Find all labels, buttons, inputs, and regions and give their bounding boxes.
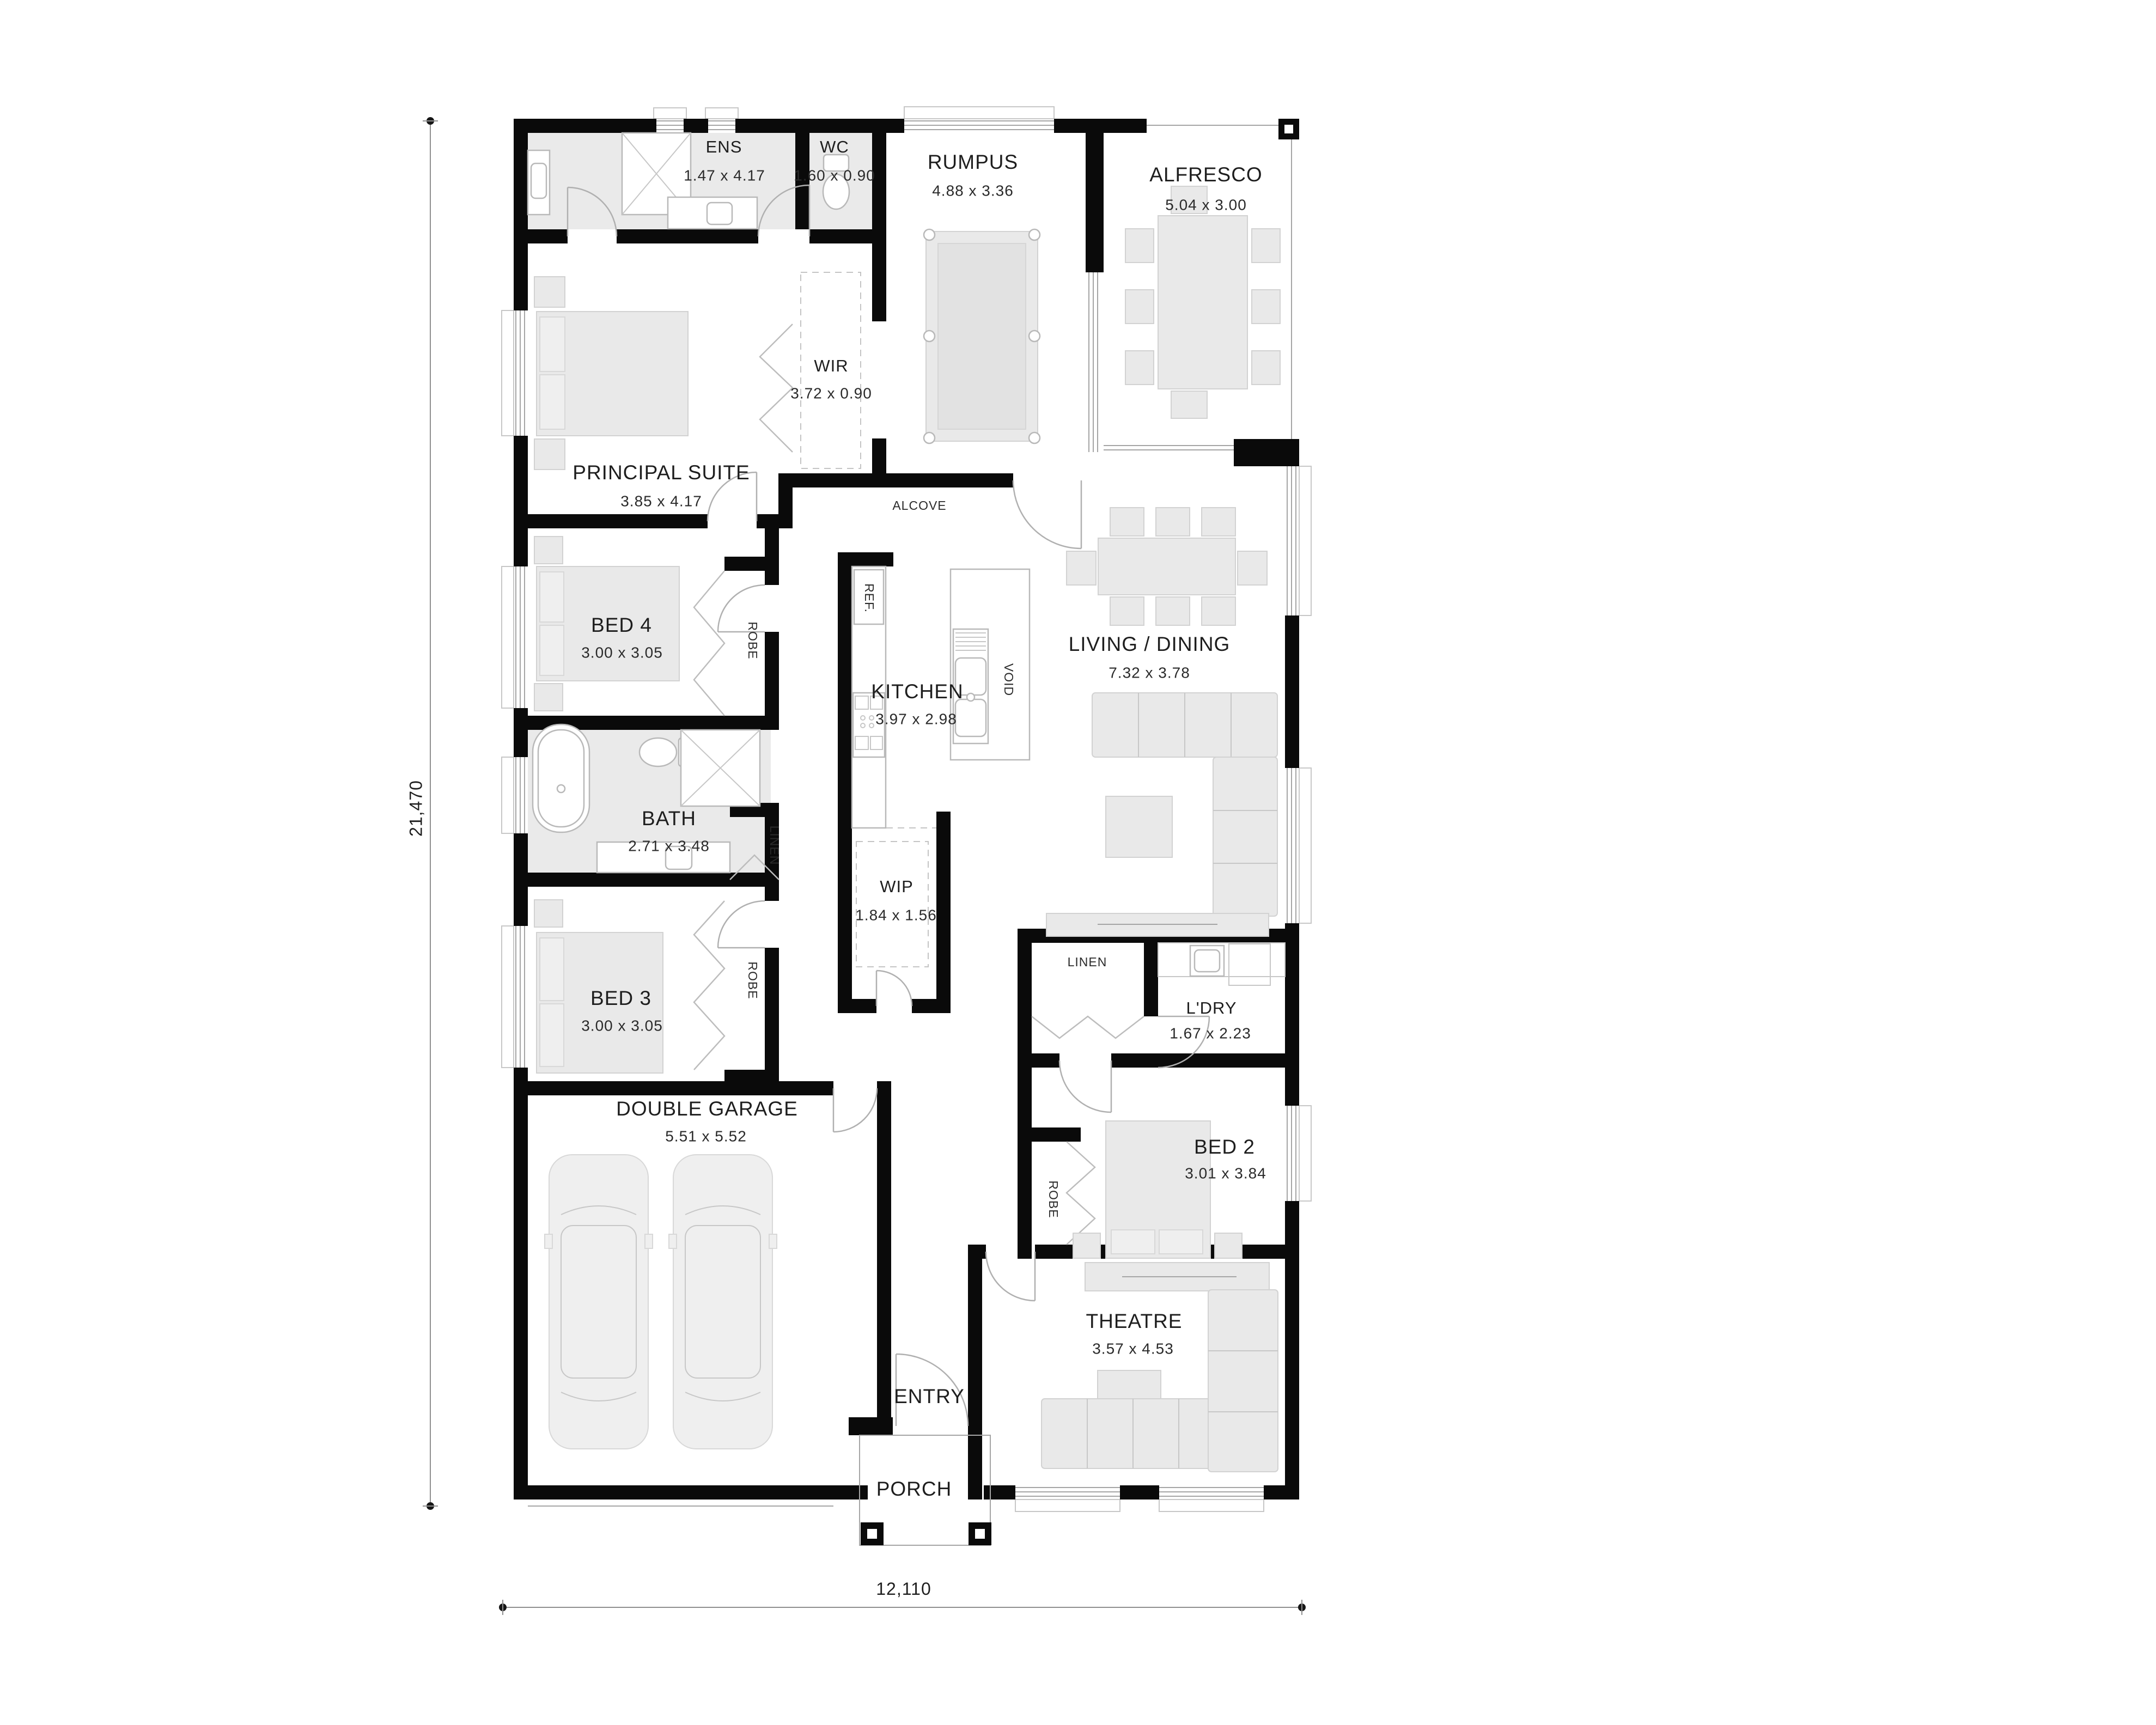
laundry-fixtures (1158, 943, 1285, 985)
principal-suite-furniture (534, 277, 688, 470)
garage-cars (545, 1155, 777, 1449)
room-dims-bath: 2.71 x 3.48 (628, 837, 710, 854)
room-label-garage: DOUBLE GARAGE (616, 1098, 798, 1120)
room-dims-wc: 1.60 x 0.90 (794, 167, 875, 184)
room-label-bath: BATH (642, 807, 696, 830)
room-dims-living-dining: 7.32 x 3.78 (1109, 664, 1190, 681)
room-label-wip: WIP (880, 877, 913, 896)
room-label-rumpus: RUMPUS (928, 151, 1018, 173)
wip-door (876, 971, 912, 1006)
linen-hall-bifold (1032, 1016, 1144, 1038)
theatre-furniture (1042, 1263, 1278, 1472)
room-label-living-dining: LIVING / DINING (1069, 633, 1231, 655)
room-label-entry: ENTRY (894, 1385, 965, 1407)
alfresco-dining-set (1125, 186, 1280, 418)
room-dims-rumpus: 4.88 x 3.36 (932, 182, 1014, 199)
porch-post (969, 1522, 991, 1545)
alfresco-stacker-door (1089, 272, 1098, 452)
room-dims-wir: 3.72 x 0.90 (790, 385, 872, 401)
room-dims-wip: 1.84 x 1.56 (855, 906, 937, 923)
bed2-door (1059, 1060, 1111, 1112)
room-label-kitchen: KITCHEN (871, 680, 963, 703)
room-dims-garage: 5.51 x 5.52 (665, 1127, 747, 1144)
bed4-robe-bifold (694, 571, 724, 716)
alfresco-south-edge (1104, 446, 1234, 450)
theatre-door (986, 1252, 1035, 1301)
car (545, 1155, 653, 1449)
room-label-theatre: THEATRE (1086, 1310, 1183, 1332)
room-label-alcove: ALCOVE (892, 498, 946, 513)
overall-height-dimension: 21,470 (406, 780, 425, 837)
room-dims-bed4: 3.00 x 3.05 (581, 644, 663, 661)
wip-shelving (856, 842, 928, 967)
room-dims-principal-suite: 3.85 x 4.17 (620, 492, 702, 509)
room-label-bed3: BED 3 (590, 987, 651, 1009)
bed3-door (718, 901, 765, 948)
room-dims-ens: 1.47 x 4.17 (684, 167, 765, 184)
garage-internal-door (833, 1088, 877, 1132)
room-label-bed4: BED 4 (591, 614, 652, 636)
bath-linen-label: LINEN (768, 826, 782, 865)
room-label-principal-suite: PRINCIPAL SUITE (573, 461, 750, 484)
hall-linen-label: LINEN (1068, 955, 1107, 969)
room-dims-theatre: 3.57 x 4.53 (1092, 1340, 1174, 1357)
car (669, 1155, 777, 1449)
room-label-ens: ENS (706, 137, 742, 156)
porch-post (861, 1522, 884, 1545)
room-dims-kitchen: 3.97 x 2.98 (875, 710, 957, 727)
fridge-label: REF. (862, 583, 876, 613)
pool-table (924, 229, 1040, 443)
bed3-robe-bifold (694, 901, 724, 1070)
alcove-door (1013, 480, 1081, 548)
bed3-robe-label: ROBE (746, 961, 760, 999)
bed2-robe-label: ROBE (1046, 1180, 1061, 1218)
living-sofa (1046, 693, 1277, 936)
room-label-wc: WC (820, 137, 849, 156)
rumpus-alfresco-wall (1086, 119, 1104, 272)
bed4-robe-label: ROBE (746, 621, 760, 659)
linen-floor (730, 817, 765, 873)
floorplan-page: 21,470 12,110 ENS 1.47 x 4.17 WC 1.60 x … (0, 0, 2156, 1725)
void-label: VOID (1002, 663, 1016, 696)
room-label-bed2: BED 2 (1194, 1136, 1255, 1158)
bed2-robe-bifold (1067, 1142, 1095, 1245)
bath-toilet (640, 738, 677, 766)
floorplan-drawing: 21,470 12,110 ENS 1.47 x 4.17 WC 1.60 x … (0, 0, 2156, 1725)
wir-bifold (760, 324, 793, 452)
overall-width-dimension: 12,110 (876, 1579, 931, 1599)
room-dims-bed3: 3.00 x 3.05 (581, 1017, 663, 1034)
living-ottoman (1106, 796, 1172, 857)
dining-set (1067, 508, 1267, 625)
room-dims-bed2: 3.01 x 3.84 (1185, 1165, 1266, 1181)
room-label-wir: WIR (814, 356, 848, 375)
room-dims-alfresco: 5.04 x 3.00 (1165, 196, 1247, 213)
room-label-ldry: L'DRY (1186, 998, 1237, 1017)
room-label-porch: PORCH (876, 1478, 952, 1500)
room-dims-ldry: 1.67 x 2.23 (1170, 1025, 1251, 1041)
room-label-alfresco: ALFRESCO (1149, 163, 1262, 186)
